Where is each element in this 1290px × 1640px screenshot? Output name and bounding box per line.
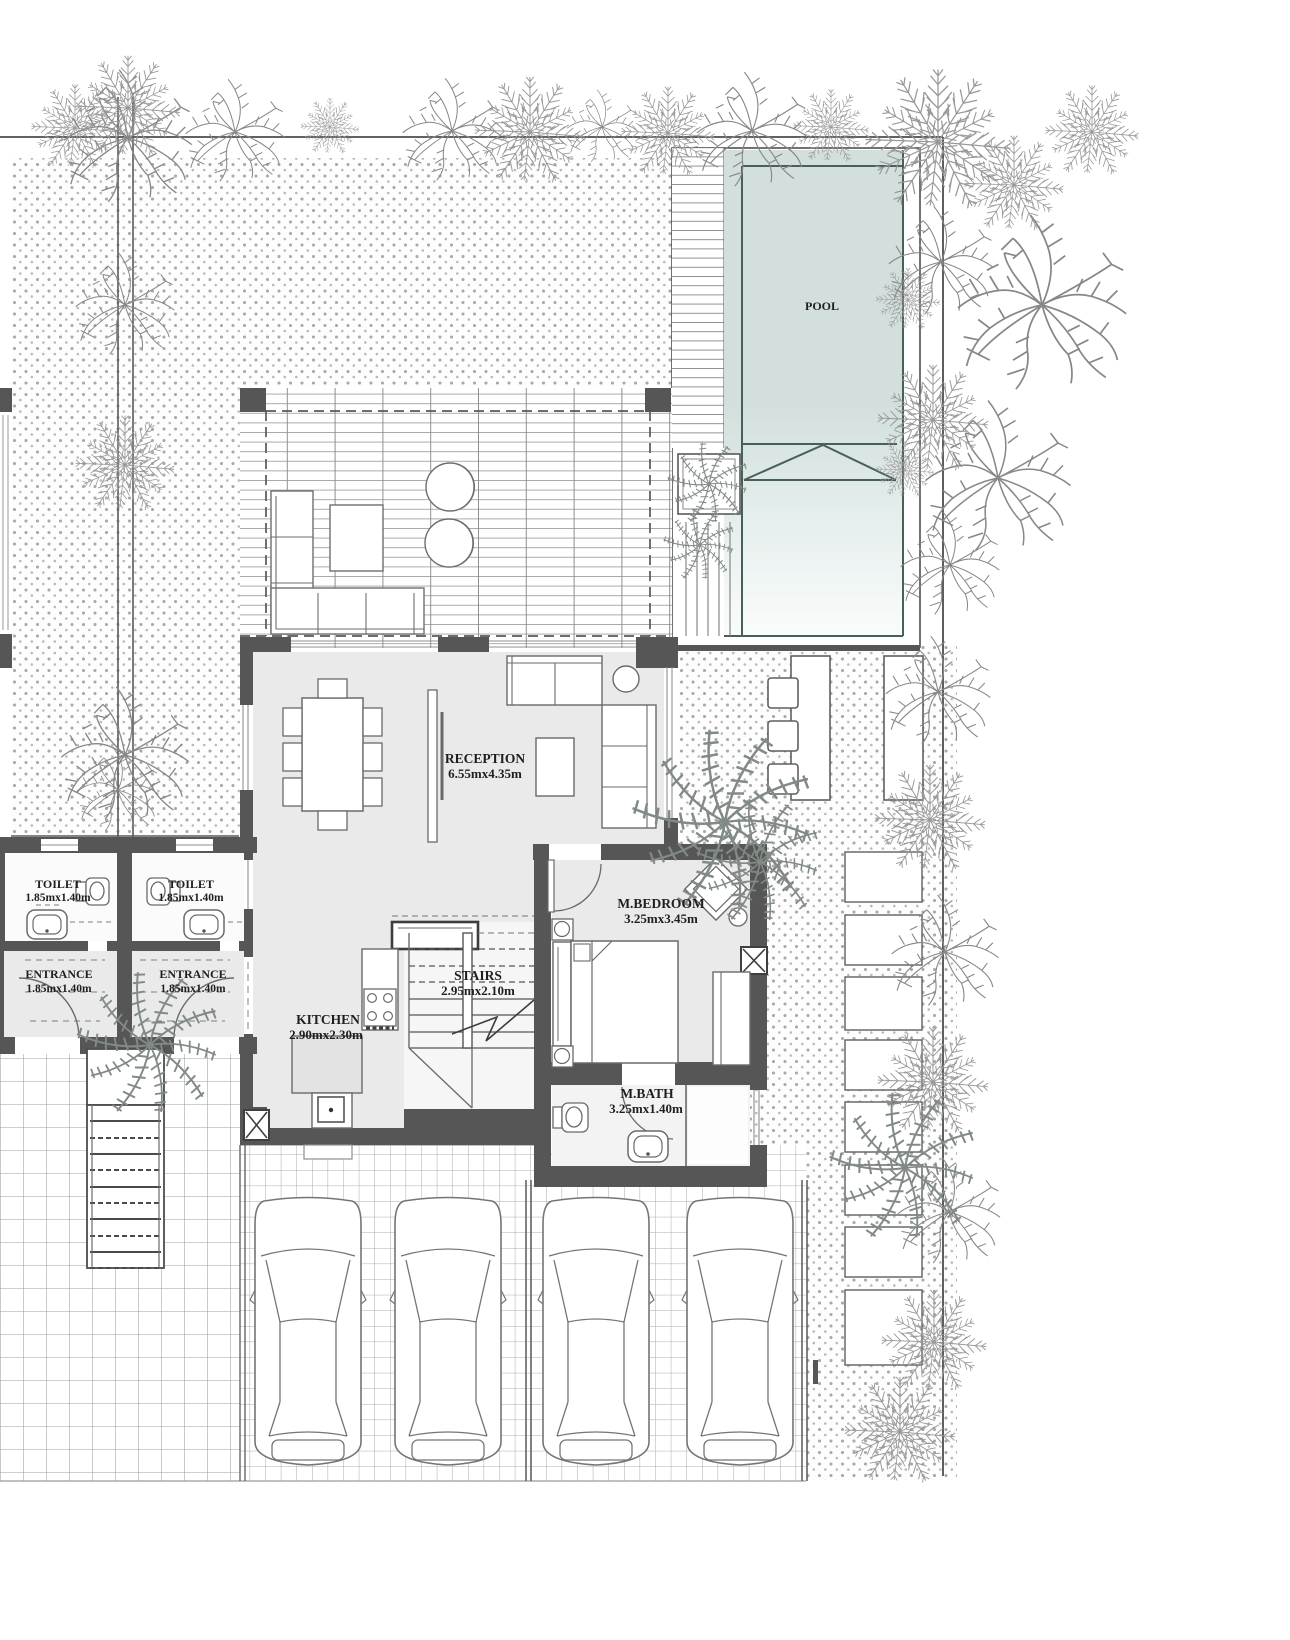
svg-text:1.85mx1.40m: 1.85mx1.40m xyxy=(26,983,92,995)
svg-text:3.25mx1.40m: 3.25mx1.40m xyxy=(609,1101,683,1116)
svg-text:TOILET: TOILET xyxy=(35,877,81,891)
svg-text:1.85mx1.40m: 1.85mx1.40m xyxy=(25,892,91,904)
svg-text:2.90mx2.30m: 2.90mx2.30m xyxy=(289,1027,363,1042)
svg-text:2.95mx2.10m: 2.95mx2.10m xyxy=(441,983,515,998)
svg-text:ENTRANCE: ENTRANCE xyxy=(25,967,92,981)
svg-text:1.85mx1.40m: 1.85mx1.40m xyxy=(158,892,224,904)
svg-text:KITCHEN: KITCHEN xyxy=(296,1012,360,1027)
svg-text:TOILET: TOILET xyxy=(168,877,214,891)
svg-text:STAIRS: STAIRS xyxy=(454,968,502,983)
svg-text:RECEPTION: RECEPTION xyxy=(445,751,526,766)
svg-text:POOL: POOL xyxy=(805,299,839,313)
svg-text:6.55mx4.35m: 6.55mx4.35m xyxy=(448,766,522,781)
svg-text:3.25mx3.45m: 3.25mx3.45m xyxy=(624,911,698,926)
svg-text:ENTRANCE: ENTRANCE xyxy=(159,967,226,981)
svg-text:1.85mx1.40m: 1.85mx1.40m xyxy=(160,983,226,995)
svg-text:M.BEDROOM: M.BEDROOM xyxy=(617,896,705,911)
svg-text:M.BATH: M.BATH xyxy=(620,1086,674,1101)
